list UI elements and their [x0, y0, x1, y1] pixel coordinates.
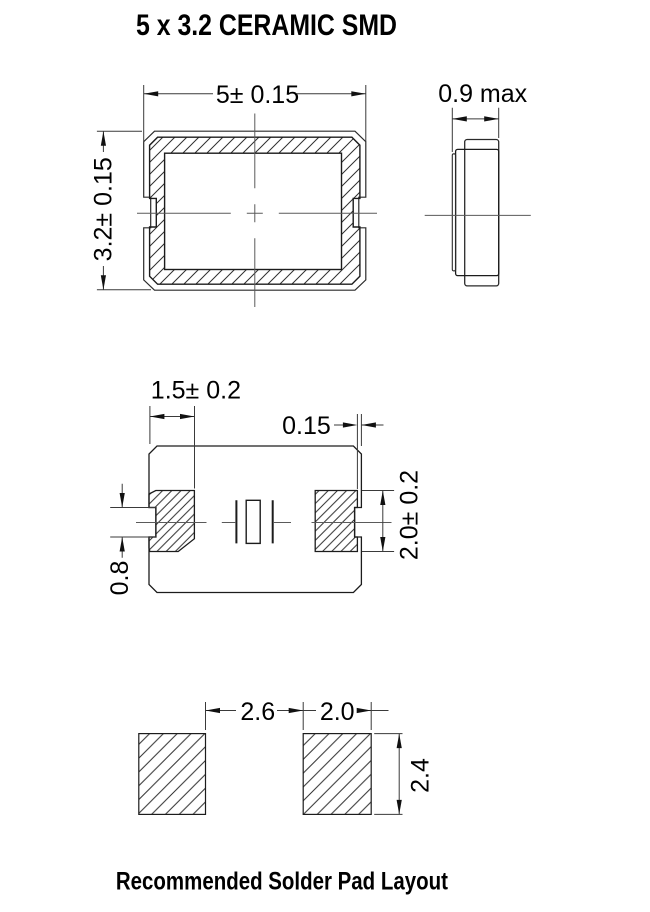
- svg-text:3.2± 0.15: 3.2± 0.15: [90, 157, 118, 261]
- svg-text:1.5± 0.2: 1.5± 0.2: [151, 377, 241, 405]
- svg-text:2.6: 2.6: [240, 698, 275, 726]
- svg-text:Recommended Solder Pad Layout: Recommended Solder Pad Layout: [116, 868, 449, 896]
- svg-text:0.8: 0.8: [106, 561, 134, 596]
- svg-text:0.15: 0.15: [282, 412, 331, 440]
- svg-text:2.0± 0.2: 2.0± 0.2: [396, 470, 424, 560]
- svg-text:5 x 3.2 CERAMIC SMD: 5 x 3.2 CERAMIC SMD: [136, 9, 397, 42]
- svg-text:2.0: 2.0: [320, 698, 355, 726]
- svg-text:2.4: 2.4: [407, 758, 435, 793]
- svg-text:0.9 max: 0.9 max: [438, 80, 527, 108]
- svg-text:5± 0.15: 5± 0.15: [216, 81, 299, 109]
